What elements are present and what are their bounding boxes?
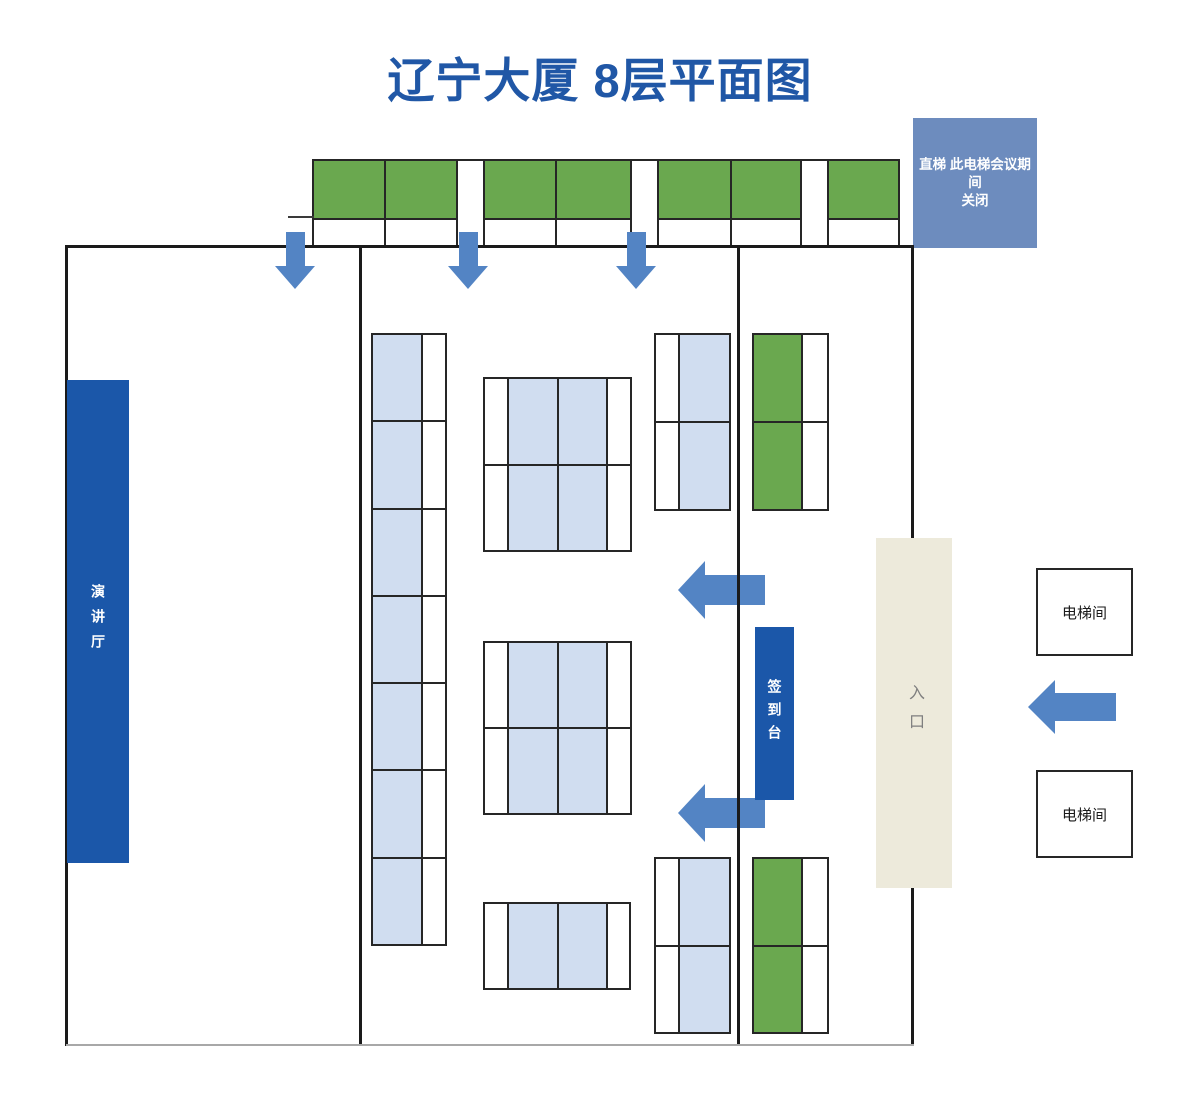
seat-cell (423, 422, 447, 509)
seat-cell (423, 859, 447, 946)
seat-cell (608, 466, 632, 553)
seat-green (485, 161, 555, 220)
seat-cell (373, 335, 423, 422)
right-bottom-green-table (752, 857, 829, 1034)
seat-cell (608, 379, 632, 466)
seat-cell (559, 379, 608, 466)
center-table-3 (483, 902, 631, 990)
seat-cell (803, 947, 829, 1035)
elevator-room-top: 电梯间 (1036, 568, 1133, 656)
seat-green (732, 161, 800, 220)
seat-cell (485, 379, 509, 466)
check-in-desk-label: 签到台 (765, 679, 785, 748)
elevator-room-bottom-label: 电梯间 (1062, 804, 1107, 825)
seat-cell (559, 643, 608, 729)
seat-green (659, 161, 730, 220)
lecture-hall-label: 演讲厅 (88, 584, 108, 659)
seat-cell (373, 510, 423, 597)
seat-cell (423, 597, 447, 684)
seat-cell (509, 379, 559, 466)
floor-plan-canvas: 辽宁大厦 8层平面图 直梯 此电梯会议期间 关闭 演讲厅 (0, 0, 1200, 1100)
seat-cell (680, 947, 731, 1035)
seat-cell (754, 947, 803, 1035)
seat-cell (559, 729, 608, 815)
seat-cell (509, 904, 559, 990)
down-arrow-1 (275, 232, 315, 289)
seat-cell (509, 643, 559, 729)
seat-cell (373, 859, 423, 946)
seat-cell (680, 423, 731, 511)
right-top-green-table (752, 333, 829, 511)
seat-cell (373, 684, 423, 771)
seat-cell (754, 423, 803, 511)
right-top-table (654, 333, 731, 511)
band-stub-line (288, 216, 314, 218)
seat-cell (608, 904, 631, 990)
seat-unit (657, 159, 732, 247)
entry-arrow-lower (678, 784, 765, 842)
right-bottom-table (654, 857, 731, 1034)
seat-cell (656, 859, 680, 947)
seat-cell (423, 684, 447, 771)
seat-cell (485, 904, 509, 990)
seat-cell (485, 729, 509, 815)
seat-cell (373, 597, 423, 684)
seat-cell (754, 335, 803, 423)
elevator-arrow (1028, 680, 1116, 734)
seat-cell (656, 423, 680, 511)
seat-cell (680, 335, 731, 423)
left-seating-column (371, 333, 447, 946)
seat-cell (803, 859, 829, 947)
seat-cell (559, 466, 608, 553)
seat-cell (423, 771, 447, 858)
elevator-room-top-label: 电梯间 (1062, 602, 1107, 623)
entrance-label: 入口 (902, 684, 926, 742)
seat-cell (485, 466, 509, 553)
elevator-note: 直梯 此电梯会议期间 关闭 (913, 118, 1037, 248)
seat-cell (373, 771, 423, 858)
check-in-desk: 签到台 (755, 627, 794, 800)
band-gap (800, 159, 829, 247)
wall-inner-right (737, 245, 740, 1046)
elevator-note-line2: 关闭 (962, 192, 989, 210)
center-table-2 (483, 641, 632, 815)
entrance-strip: 入口 (876, 538, 952, 888)
seat-cell (656, 335, 680, 423)
down-arrow-2 (448, 232, 488, 289)
seat-unit (483, 159, 557, 247)
seat-cell (803, 335, 829, 423)
seat-green (314, 161, 384, 220)
down-arrow-3 (616, 232, 656, 289)
elevator-room-bottom: 电梯间 (1036, 770, 1133, 858)
page-title: 辽宁大厦 8层平面图 (0, 42, 1200, 111)
seat-green (386, 161, 456, 220)
seat-cell (373, 422, 423, 509)
seat-cell (559, 904, 608, 990)
seat-cell (509, 729, 559, 815)
seat-cell (608, 643, 632, 729)
wall-top (66, 245, 913, 248)
wall-inner-left (359, 245, 362, 1046)
seat-cell (656, 947, 680, 1035)
center-table-1 (483, 377, 632, 552)
seat-unit (384, 159, 458, 247)
entry-arrow-upper (678, 561, 765, 619)
seat-cell (423, 510, 447, 597)
seat-cell (485, 643, 509, 729)
elevator-note-line1: 直梯 此电梯会议期间 (913, 156, 1037, 192)
lecture-hall-bar: 演讲厅 (67, 380, 129, 863)
wall-bottom (66, 1044, 914, 1046)
seat-unit (730, 159, 802, 247)
seat-cell (608, 729, 632, 815)
seat-unit (827, 159, 900, 247)
seat-cell (803, 423, 829, 511)
seat-cell (754, 859, 803, 947)
seat-cell (423, 335, 447, 422)
seat-green (829, 161, 898, 220)
seat-green (557, 161, 630, 220)
seat-unit (312, 159, 386, 247)
seat-cell (509, 466, 559, 553)
seat-cell (680, 859, 731, 947)
